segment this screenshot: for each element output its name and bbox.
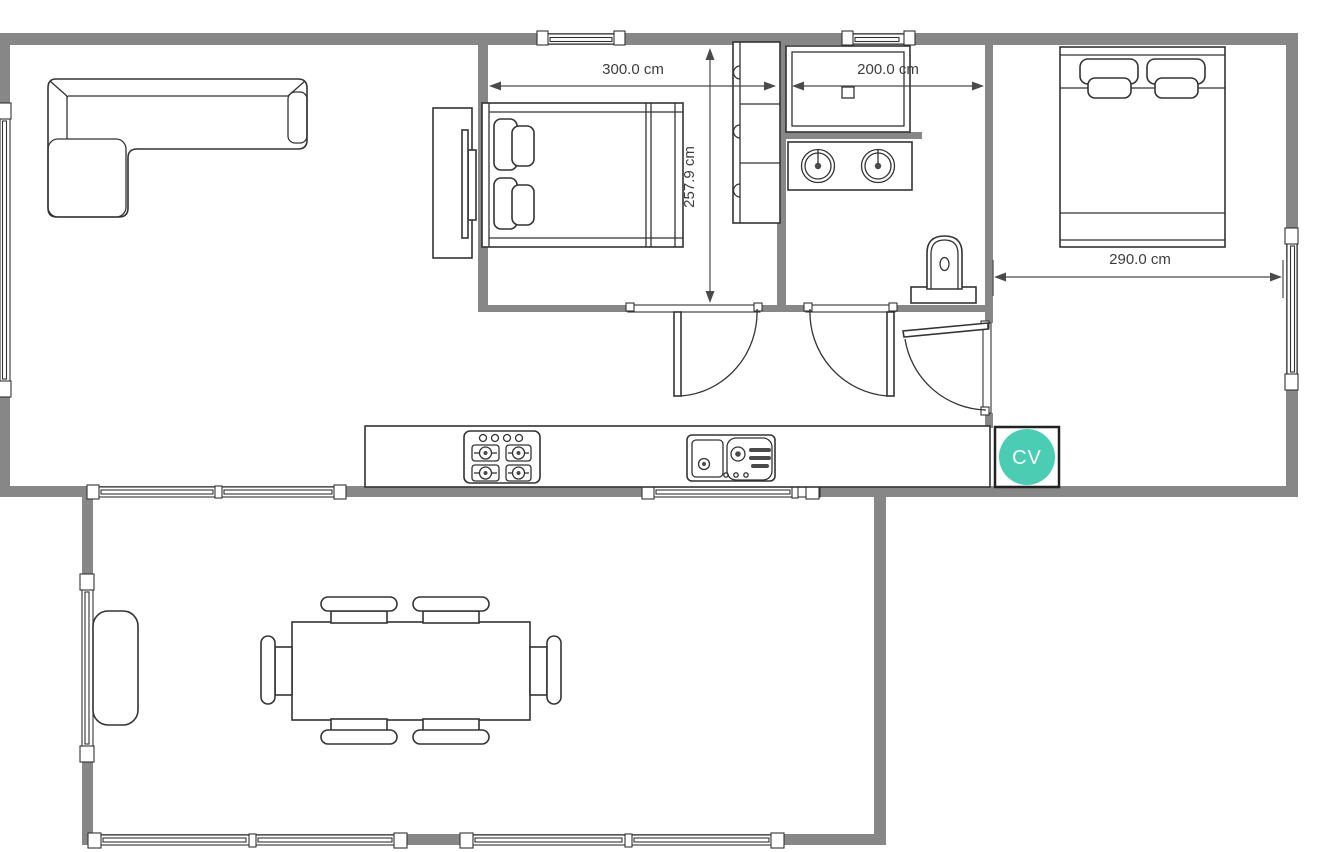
dining-chair-icon[interactable] (413, 719, 489, 744)
wall-right-lower (874, 497, 886, 845)
dimension-label: 200.0 cm (857, 61, 919, 78)
floor-plan-canvas: 300.0 cm 200.0 cm 257.9 cm 290.0 cm CV (0, 0, 1333, 852)
dining-chair-icon[interactable] (261, 636, 292, 704)
dining-chair-icon[interactable] (530, 636, 561, 704)
door-icon[interactable] (804, 303, 897, 396)
wall-bathroom-right (985, 45, 993, 323)
shower-partition (786, 132, 922, 139)
cv-badge-label: CV (1012, 447, 1042, 469)
toilet-icon[interactable] (911, 236, 976, 303)
double-sink-vanity-icon[interactable] (788, 142, 912, 190)
kitchen-counter-icon[interactable] (365, 426, 990, 487)
dimension-label: 290.0 cm (1109, 251, 1171, 268)
window-icon[interactable] (460, 833, 784, 848)
wall-hall-b (762, 305, 806, 312)
wall-hall-a (478, 305, 628, 312)
window-icon[interactable] (80, 574, 94, 762)
dining-table-icon[interactable] (292, 622, 530, 720)
dining-chair-icon[interactable] (321, 597, 397, 623)
dimension-label: 300.0 cm (602, 61, 664, 78)
dining-chair-icon[interactable] (321, 719, 397, 744)
double-bed-icon[interactable] (482, 103, 683, 247)
cv-badge[interactable]: CV (995, 427, 1059, 487)
window-icon[interactable] (1285, 228, 1298, 390)
wall-hall-c (895, 305, 993, 312)
corner-sofa-icon[interactable] (48, 79, 307, 217)
dimension-label: 257.9 cm (681, 146, 698, 208)
stove-icon[interactable] (464, 431, 540, 483)
second-double-bed-icon[interactable] (1060, 47, 1225, 247)
window-icon[interactable] (87, 485, 346, 499)
wardrobe-cabinet-icon[interactable] (733, 42, 780, 223)
dining-chair-icon[interactable] (413, 597, 489, 623)
window-icon[interactable] (88, 833, 407, 848)
doors (626, 303, 991, 415)
kitchen-sink-icon[interactable] (687, 435, 775, 481)
tv-console-icon[interactable] (433, 108, 476, 258)
door-icon[interactable] (903, 321, 991, 415)
window-icon[interactable] (0, 103, 11, 397)
wall-top (3, 33, 1298, 45)
door-icon[interactable] (626, 303, 762, 396)
dimension-bedroom2-width[interactable]: 290.0 cm (993, 251, 1283, 298)
side-cabinet-icon[interactable] (93, 611, 138, 725)
shower-icon[interactable] (786, 46, 910, 132)
